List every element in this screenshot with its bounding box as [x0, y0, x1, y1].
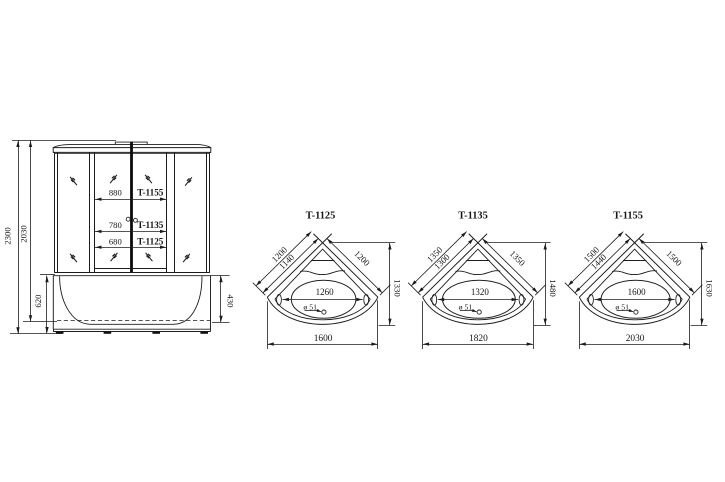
svg-text:2030: 2030 — [626, 334, 645, 344]
svg-text:1330: 1330 — [393, 279, 403, 297]
svg-text:1630: 1630 — [705, 279, 715, 297]
svg-text:1260: 1260 — [316, 287, 335, 297]
svg-text:1600: 1600 — [628, 287, 647, 297]
svg-text:T-1135: T-1135 — [458, 210, 488, 221]
svg-text:430: 430 — [226, 294, 236, 308]
svg-text:680: 680 — [109, 237, 122, 247]
svg-text:T-1125: T-1125 — [137, 237, 164, 247]
svg-text:T-1155: T-1155 — [613, 210, 643, 221]
svg-text:T-1135: T-1135 — [137, 220, 164, 230]
svg-text:1600: 1600 — [314, 334, 333, 344]
svg-text:T-1125: T-1125 — [306, 210, 336, 221]
svg-text:620: 620 — [33, 294, 43, 308]
svg-text:2300: 2300 — [3, 227, 13, 245]
svg-text:1480: 1480 — [548, 279, 558, 297]
svg-text:2030: 2030 — [18, 225, 28, 243]
svg-text:780: 780 — [109, 220, 122, 230]
svg-text:880: 880 — [109, 187, 122, 197]
svg-text:1320: 1320 — [471, 287, 490, 297]
svg-text:1820: 1820 — [469, 334, 488, 344]
svg-text:T-1155: T-1155 — [137, 187, 164, 197]
